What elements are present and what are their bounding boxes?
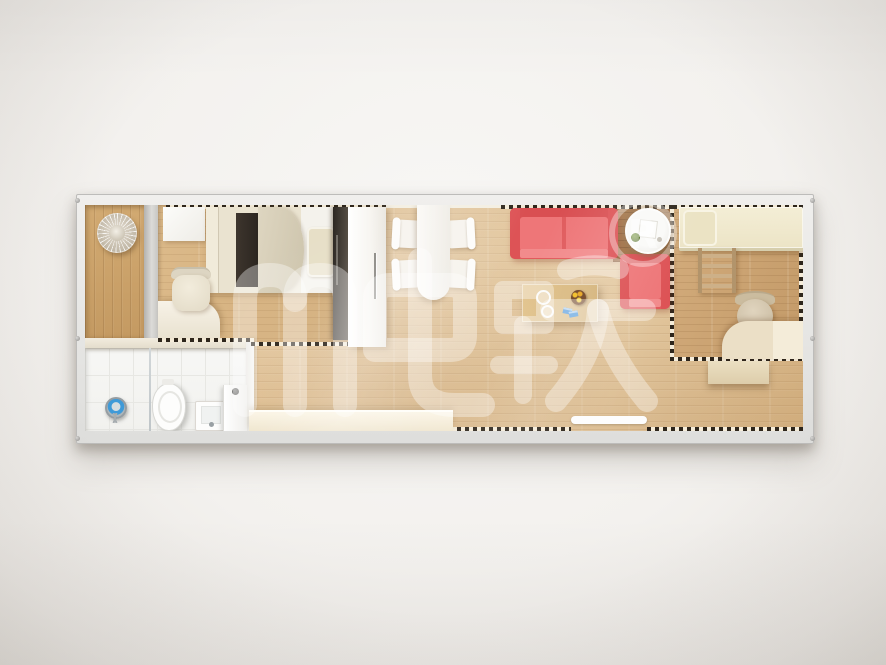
corner-bolt-icon [810, 198, 815, 203]
sofa [510, 208, 618, 259]
tall-cabinet [348, 207, 386, 347]
pillow [307, 227, 335, 277]
duvet [258, 207, 304, 293]
faucet [209, 422, 214, 427]
dashed-wall-bedroom1-bottom [158, 338, 254, 342]
pillow [683, 210, 717, 246]
corner-bolt-icon [75, 198, 80, 203]
book [638, 219, 658, 239]
floor-plan-interior: R [85, 205, 803, 431]
corner-bolt-icon [75, 436, 80, 441]
coffee-table [522, 284, 598, 322]
armchair-armrest [620, 254, 629, 309]
kitchen-bench [249, 410, 453, 431]
washer-knob [232, 388, 239, 395]
bed-runner [236, 213, 258, 287]
dashed-wall-corridor [251, 342, 348, 346]
desk-extension [773, 321, 803, 359]
dashed-wall-bottom-right [647, 427, 803, 431]
plant [631, 233, 640, 242]
bedroom-desk-chair [171, 267, 211, 311]
double-bed [206, 207, 333, 293]
storage-cabinet [163, 207, 205, 241]
single-bed [679, 207, 803, 251]
armchair-front-edge [629, 299, 661, 307]
plate [541, 305, 554, 318]
door-threshold [571, 416, 647, 424]
bunk-ladder [698, 248, 736, 293]
render-stage: R [0, 0, 886, 665]
fruit-bowl [571, 290, 586, 305]
storage-shelf [708, 361, 769, 384]
entry-divider-wall [144, 205, 158, 338]
sofa-cushions [520, 217, 608, 251]
washing-machine [223, 385, 247, 431]
shower-drain [104, 397, 126, 425]
dark-wardrobe [333, 207, 348, 340]
sofa-armrest [608, 208, 618, 259]
corner-bolt-icon [810, 436, 815, 441]
napkin [569, 310, 579, 317]
dining-table [417, 205, 450, 300]
side-table [625, 208, 671, 254]
corner-bolt-icon [75, 336, 80, 341]
toilet [151, 379, 185, 429]
toilet-seat [158, 391, 182, 423]
cabinet-handle [374, 253, 376, 299]
corner-desk [722, 321, 803, 359]
pendant-lamp [97, 213, 137, 253]
sofa-armrest [510, 208, 520, 259]
shower-stand [104, 413, 126, 423]
sofa-front-edge [520, 249, 608, 258]
armchair-armrest [661, 254, 670, 309]
container-unit: R [76, 194, 814, 444]
chair-seat [172, 275, 210, 311]
toilet-hinge [162, 379, 174, 385]
plate [536, 290, 551, 305]
armchair [620, 254, 670, 309]
armchair-cushion [629, 263, 661, 299]
cup [657, 237, 662, 242]
corner-bolt-icon [810, 336, 815, 341]
